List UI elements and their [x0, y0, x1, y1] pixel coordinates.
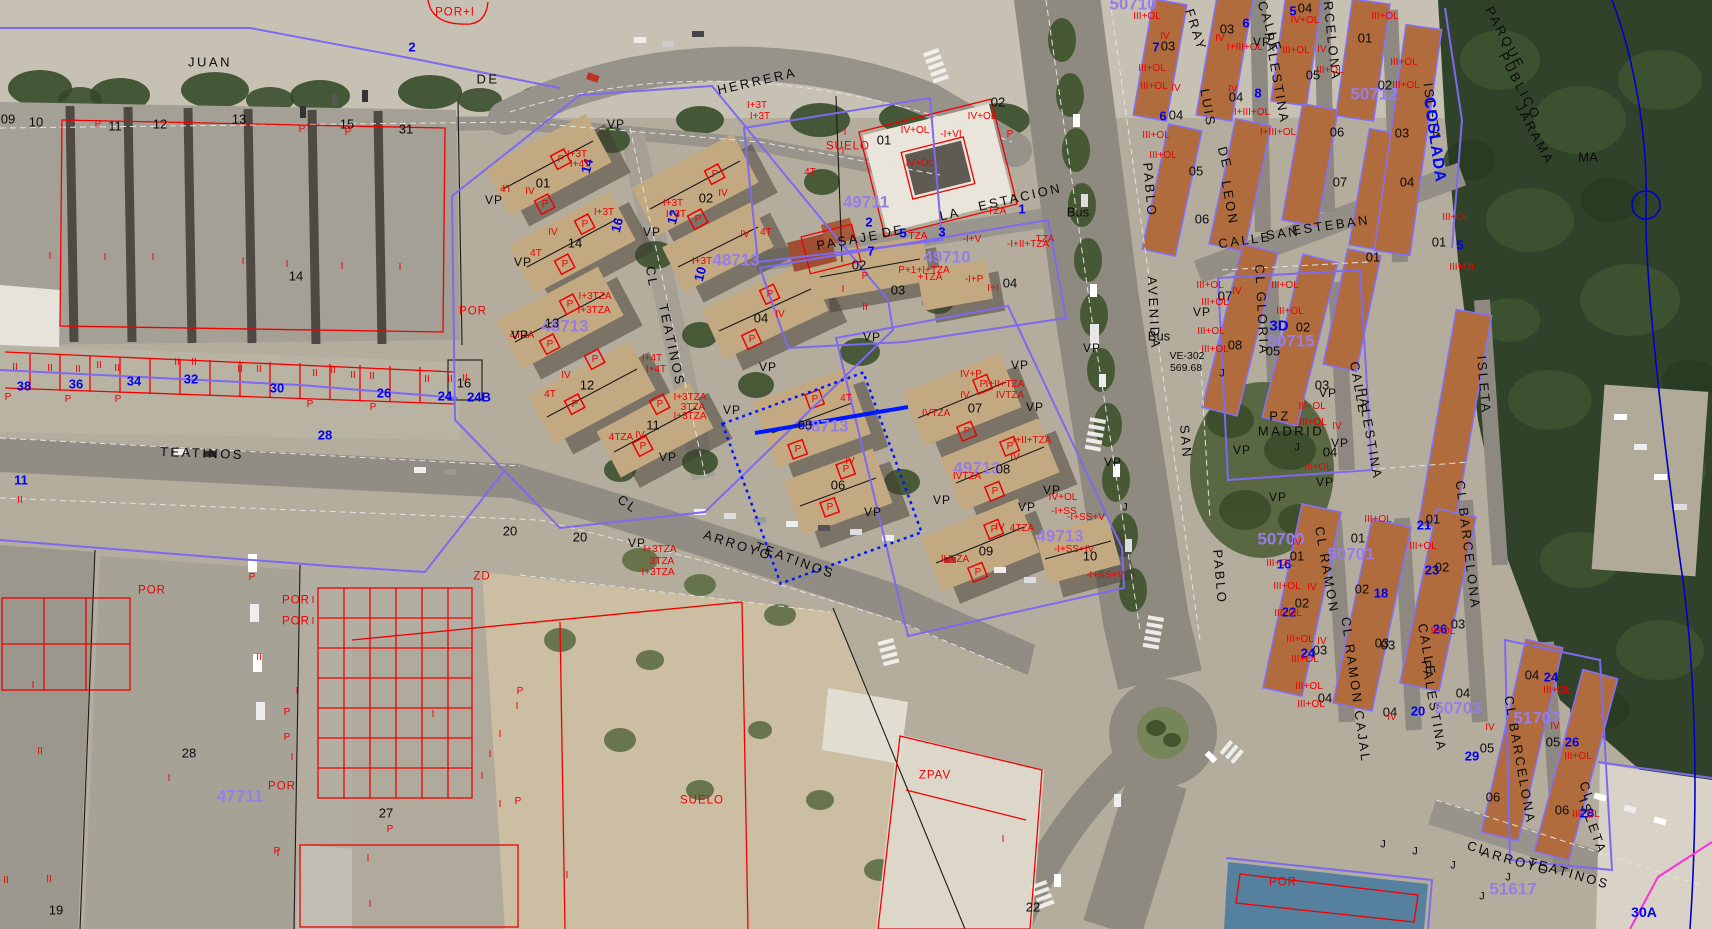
street-label: SAN	[1178, 424, 1194, 459]
map-annotation: J	[1479, 892, 1485, 903]
construction-code: III+OL	[1298, 402, 1326, 412]
portal-number: 11	[14, 474, 28, 487]
construction-code: 4TZA	[1010, 524, 1034, 534]
street-label: JUAN	[188, 56, 232, 69]
construction-code: II	[191, 358, 197, 368]
construction-code: III+OL	[1274, 609, 1302, 619]
zone-label: POR	[268, 781, 296, 793]
building-number: 14	[289, 270, 303, 283]
construction-code: I	[242, 257, 245, 267]
construction-code: IV+OL	[906, 159, 935, 169]
construction-code: II	[350, 371, 356, 381]
zone-label: POR	[282, 616, 310, 628]
portal-number: 2	[408, 41, 415, 54]
street-label: LEON	[1220, 180, 1241, 227]
construction-code: P	[749, 335, 756, 345]
portal-number: 3	[938, 226, 945, 239]
street-label: PABLO	[1211, 549, 1229, 605]
construction-code: IV	[1228, 85, 1237, 95]
construction-code: IV	[1160, 32, 1169, 42]
street-label: DE	[476, 73, 499, 86]
construction-code: II	[37, 747, 43, 757]
construction-code: II	[12, 363, 18, 373]
zone-label: POR	[459, 306, 487, 318]
portal-number: 5	[1456, 239, 1463, 252]
zone-label: POR+I	[435, 7, 475, 19]
building-number: 10	[29, 116, 43, 129]
construction-code: I	[481, 772, 484, 782]
construction-code: IV	[1232, 287, 1241, 297]
building-number: 13	[545, 317, 559, 330]
construction-code: IVTZA	[996, 391, 1024, 401]
construction-code: IV	[1387, 713, 1396, 723]
map-annotation: VP	[864, 506, 882, 518]
building-number: 04	[1003, 277, 1017, 290]
building-number: 27	[379, 807, 393, 820]
construction-code: I	[312, 596, 315, 606]
construction-code: IV	[1485, 723, 1494, 733]
building-number: 02	[991, 96, 1005, 109]
street-label: PZ	[1269, 410, 1291, 423]
construction-code: II	[256, 365, 262, 375]
construction-code: I+3TZA	[641, 568, 674, 578]
building-number: 08	[1228, 339, 1242, 352]
construction-code: P	[5, 393, 12, 403]
construction-code: I	[341, 262, 344, 272]
construction-code: P	[542, 200, 549, 210]
construction-code: IV	[635, 431, 644, 441]
building-number: 14	[568, 237, 582, 250]
construction-code: IV	[775, 310, 784, 320]
building-number: 03	[891, 284, 905, 297]
map-annotation: VP	[1269, 491, 1287, 503]
portal-number: 24	[438, 390, 452, 403]
construction-code: I+3T	[663, 199, 683, 209]
building-number: 09	[979, 545, 993, 558]
construction-code: II	[256, 653, 262, 663]
construction-code: P	[284, 733, 291, 743]
portal-number: 30	[270, 382, 284, 395]
construction-code: IV	[1171, 84, 1180, 94]
building-number: 01	[1426, 513, 1440, 526]
building-number: 28	[182, 747, 196, 760]
construction-code: I	[367, 854, 370, 864]
portal-number: 16	[609, 216, 625, 233]
map-annotation: VP	[485, 194, 503, 206]
construction-code: I	[168, 774, 171, 784]
street-label: PALESTINA	[1356, 387, 1385, 481]
construction-code: II	[462, 374, 468, 384]
portal-number: 24	[1544, 671, 1558, 684]
zone-label: POR	[138, 585, 166, 597]
construction-code: III+OL	[1286, 635, 1314, 645]
map-annotation: VP	[1043, 484, 1061, 496]
building-number: 01	[877, 134, 891, 147]
construction-code: 4TZA	[609, 433, 633, 443]
portal-number: 32	[184, 373, 198, 386]
street-label: TEATINOS	[160, 445, 244, 461]
construction-code: P	[1007, 442, 1014, 452]
building-number: 01	[1351, 532, 1365, 545]
construction-code: I	[296, 687, 299, 697]
construction-code: IV	[1550, 722, 1559, 732]
building-number: 04	[1456, 687, 1470, 700]
construction-code: IVTZA	[953, 472, 981, 482]
construction-code: II	[424, 375, 430, 385]
block-number: 49711	[843, 194, 889, 211]
construction-code: III+OL	[1142, 131, 1170, 141]
construction-code: II	[114, 364, 120, 374]
map-annotation: VP	[1319, 387, 1337, 399]
construction-code: -I+SS+V	[1086, 571, 1124, 581]
building-number: 06	[1486, 791, 1500, 804]
construction-code: I+3TZA	[578, 292, 611, 302]
map-annotation: VP	[1104, 456, 1122, 468]
construction-code: 3TZA	[650, 557, 674, 567]
construction-code: P	[515, 797, 522, 807]
construction-code: II	[75, 365, 81, 375]
construction-code: P	[964, 427, 971, 437]
construction-code: IVTZA	[941, 555, 969, 565]
construction-code: P	[767, 290, 774, 300]
construction-code: P	[274, 847, 281, 857]
block-number: 50701	[1327, 546, 1374, 563]
construction-code: I	[499, 800, 502, 810]
construction-code: I	[49, 252, 52, 262]
construction-code: II	[447, 375, 453, 385]
map-annotation: Bus	[1148, 330, 1170, 343]
building-number: 05	[1189, 165, 1203, 178]
construction-code: P	[1007, 130, 1014, 140]
construction-code: IV	[1215, 34, 1224, 44]
map-annotation: VP	[1253, 36, 1271, 48]
construction-code: P	[572, 400, 579, 410]
building-number: 06	[1555, 804, 1569, 817]
construction-code: I+4T	[646, 365, 666, 375]
map-annotation: VP	[723, 404, 741, 416]
building-number: 03	[1375, 637, 1389, 650]
construction-code: III+OL	[1271, 281, 1299, 291]
construction-code: II	[312, 369, 318, 379]
construction-code: P	[95, 120, 102, 130]
construction-code: P	[862, 272, 869, 282]
building-number: 02	[1435, 561, 1449, 574]
street-label: CL	[615, 492, 640, 515]
portal-number: 20	[1411, 705, 1425, 718]
map-annotation: MA	[1578, 151, 1598, 164]
construction-code: IV	[960, 391, 969, 401]
map-annotation: VP	[1233, 444, 1251, 456]
construction-code: P	[992, 487, 999, 497]
building-number: 31	[399, 123, 413, 136]
portal-number: 1	[1018, 203, 1025, 216]
street-label: PABLO	[1141, 162, 1159, 218]
building-number: 02	[852, 259, 866, 272]
construction-code: I+4T	[570, 160, 590, 170]
construction-code: III+OL	[1133, 12, 1161, 22]
building-number: 12	[153, 118, 167, 131]
construction-code: II+OL	[1431, 627, 1456, 637]
construction-code: IV	[1010, 453, 1019, 463]
portal-number: 8	[1254, 87, 1261, 100]
construction-code: I+II+TZA	[986, 380, 1025, 390]
construction-code: II	[369, 372, 375, 382]
construction-code: I	[516, 702, 519, 712]
zone-label: SUELO	[826, 141, 870, 153]
construction-code: I+3TZA	[643, 545, 676, 555]
construction-code: -I+SS+V	[1067, 513, 1105, 523]
map-annotation: VP	[1331, 437, 1349, 449]
portal-number: 6	[1242, 17, 1249, 30]
construction-code: II	[17, 496, 23, 506]
map-annotation: J	[1505, 873, 1511, 884]
portal-number: 7	[1152, 41, 1159, 54]
block-number: 50703	[1434, 700, 1481, 717]
map-canvas[interactable]: JUANDEHERRERAPASAJEDELAESTACIONTEATINOSC…	[0, 0, 1712, 929]
construction-code: II	[96, 361, 102, 371]
construction-code: -I+SS+IV	[1054, 545, 1095, 555]
map-annotation: VP	[1193, 306, 1211, 318]
map-labels: JUANDEHERRERAPASAJEDELAESTACIONTEATINOSC…	[0, 0, 1712, 929]
construction-code: IV	[1317, 45, 1326, 55]
construction-code: P	[567, 300, 574, 310]
street-label: COSLADA	[1420, 96, 1448, 183]
map-annotation: 569.68	[1170, 363, 1202, 374]
building-number: 04	[1169, 109, 1183, 122]
building-number: 11	[646, 419, 660, 432]
portal-number: 24B	[467, 391, 491, 404]
construction-code: P	[592, 355, 599, 365]
building-number: 04	[1298, 2, 1312, 15]
map-annotation: VP	[1018, 501, 1036, 513]
portal-number: 18	[1374, 587, 1388, 600]
construction-code: III+OL	[1297, 700, 1325, 710]
construction-code: I+II+TZA	[1013, 436, 1052, 446]
construction-code: I	[291, 753, 294, 763]
construction-code: III+OL	[1196, 281, 1224, 291]
construction-code: P	[370, 403, 377, 413]
construction-code: I	[369, 900, 372, 910]
construction-code: III+OL	[1291, 655, 1319, 665]
construction-code: IV	[718, 189, 727, 199]
construction-code: IV	[1332, 422, 1341, 432]
construction-code: P	[345, 128, 352, 138]
construction-code: I	[152, 253, 155, 263]
building-number: 04	[1400, 176, 1414, 189]
building-number: 09	[1, 113, 15, 126]
portal-number: 26	[1565, 736, 1579, 749]
construction-code: I	[844, 128, 847, 138]
construction-code: I	[842, 285, 845, 295]
construction-code: P	[387, 825, 394, 835]
construction-code: I+3TZA	[673, 412, 706, 422]
construction-code: P	[307, 400, 314, 410]
map-annotation: J	[1219, 369, 1225, 380]
construction-code: P	[517, 687, 524, 697]
map-annotation: VP	[643, 226, 661, 238]
construction-code: P	[827, 503, 834, 513]
street-label: CL	[644, 265, 661, 289]
building-number: 05	[798, 419, 812, 432]
building-number: 13	[232, 113, 246, 126]
block-number: 48713	[712, 252, 759, 269]
map-annotation: Bus	[1067, 206, 1089, 219]
construction-code: P	[115, 395, 122, 405]
building-number: 02	[1355, 583, 1369, 596]
construction-code: P	[249, 573, 256, 583]
construction-code: IV+OL	[1291, 16, 1320, 26]
construction-code: I+3T	[594, 208, 614, 218]
building-number: 06	[831, 479, 845, 492]
construction-code: III+OL	[1371, 12, 1399, 22]
construction-code: I	[399, 263, 402, 273]
construction-code: P	[980, 380, 987, 390]
construction-code: III+OL	[1442, 213, 1470, 223]
street-label: HERRERA	[716, 66, 798, 97]
portal-number: 38	[17, 380, 31, 393]
portal-number: 7	[867, 245, 874, 258]
street-label: LA	[938, 205, 961, 222]
construction-code: III+OL	[1149, 151, 1177, 161]
portal-number: 10	[692, 265, 708, 282]
street-label: FRAY	[1183, 7, 1209, 53]
construction-code: 4T	[804, 168, 816, 178]
construction-code: III+OL	[1304, 463, 1332, 473]
building-number: 06	[1195, 213, 1209, 226]
construction-code: IV	[740, 230, 749, 240]
portal-number: 28	[318, 429, 332, 442]
portal-number: 2	[865, 216, 872, 229]
construction-code: P	[547, 340, 554, 350]
construction-code: I	[566, 871, 569, 881]
construction-code: II	[330, 366, 336, 376]
building-number: 11	[108, 120, 122, 133]
zone-label: ZD	[473, 571, 490, 583]
portal-number: 30A	[1631, 905, 1657, 919]
building-number: 05	[1546, 736, 1560, 749]
construction-code: +TZA	[918, 273, 943, 283]
map-annotation: VP	[514, 256, 532, 268]
map-annotation: VP	[659, 451, 677, 463]
zone-label: POR	[282, 595, 310, 607]
construction-code: I	[104, 253, 107, 263]
street-label: CL RAMON	[1313, 525, 1341, 614]
construction-code: P	[299, 125, 306, 135]
construction-code: IV+OL	[901, 126, 930, 136]
construction-code: P	[795, 445, 802, 455]
map-annotation: VP	[607, 118, 625, 130]
block-number: 49713	[1036, 528, 1083, 545]
construction-code: -I+V	[963, 235, 982, 245]
building-number: 05	[1266, 345, 1280, 358]
street-label: LUIS	[1198, 88, 1218, 129]
building-number: 02	[1296, 321, 1310, 334]
construction-code: I	[286, 260, 289, 270]
map-annotation: VE-302	[1169, 351, 1204, 362]
portal-number: 6	[1159, 110, 1166, 123]
construction-code: I+3T	[666, 210, 686, 220]
construction-code: -I+VI	[940, 130, 961, 140]
map-annotation: J	[1294, 443, 1300, 454]
construction-code: P	[640, 442, 647, 452]
construction-code: III+OL	[1564, 752, 1592, 762]
building-number: 02	[699, 192, 713, 205]
construction-code: I+4T	[642, 354, 662, 364]
construction-code: II	[3, 876, 9, 886]
construction-code: I+3T	[750, 112, 770, 122]
construction-code: -I+P	[965, 275, 984, 285]
construction-code: P	[657, 400, 664, 410]
map-annotation: VP	[1026, 401, 1044, 413]
construction-code: III+OL	[1449, 263, 1477, 273]
construction-code: III+OL	[1273, 582, 1301, 592]
map-annotation: VP	[933, 494, 951, 506]
portal-number: 36	[69, 378, 83, 391]
construction-code: II	[46, 875, 52, 885]
construction-code: II	[862, 303, 868, 313]
street-label: ESTEBAN	[1291, 213, 1370, 237]
construction-code: IVTZA	[922, 409, 950, 419]
construction-code: III+OL	[1266, 559, 1294, 569]
construction-code: IV	[1292, 538, 1301, 548]
block-number: 47711	[217, 788, 263, 805]
construction-code: I+III+OL	[1260, 128, 1296, 138]
map-annotation: VP	[511, 329, 529, 341]
building-number: 01	[1366, 251, 1380, 264]
map-annotation: VP	[863, 331, 881, 343]
construction-code: II	[237, 365, 243, 375]
zone-label: ZPAV	[919, 770, 951, 782]
building-number: 01	[1432, 236, 1446, 249]
construction-code: I+III+OL	[1234, 108, 1270, 118]
street-label: CL RAMON CAJAL	[1339, 616, 1372, 764]
building-number: 22	[1026, 901, 1040, 914]
map-annotation: VP	[1083, 342, 1101, 354]
building-number: 19	[49, 904, 63, 917]
construction-code: III+OL	[1409, 542, 1437, 552]
construction-code: I	[432, 710, 435, 720]
construction-code: III+OL	[1295, 682, 1323, 692]
construction-code: TZA	[909, 232, 928, 242]
portal-number: 34	[127, 375, 141, 388]
building-number: 07	[1333, 176, 1347, 189]
building-number: 20	[503, 525, 517, 538]
construction-code: -I+II+TZA	[1007, 240, 1049, 250]
street-label: ISLETA	[1475, 355, 1493, 415]
construction-code: P	[843, 465, 850, 475]
construction-code: III+OL	[1276, 307, 1304, 317]
map-annotation: J	[1380, 840, 1386, 851]
building-number: 20	[573, 531, 587, 544]
construction-code: P	[582, 220, 589, 230]
street-label: CL BARCELONA	[1454, 480, 1483, 611]
building-number: 03	[1395, 127, 1409, 140]
map-annotation: VP	[1316, 476, 1334, 488]
construction-code: III+OL	[1197, 327, 1225, 337]
construction-code: 4T	[544, 390, 556, 400]
construction-code: I	[312, 617, 315, 627]
map-annotation: J	[1122, 503, 1128, 514]
construction-code: III+OL	[1572, 810, 1600, 820]
construction-code: P	[991, 525, 998, 535]
construction-code: P	[284, 708, 291, 718]
construction-code: I	[1002, 835, 1005, 845]
construction-code: III+OL	[1299, 418, 1327, 428]
construction-code: 4T	[760, 228, 772, 238]
construction-code: III+OL	[1364, 515, 1392, 525]
building-number: 04	[1525, 669, 1539, 682]
construction-code: P	[695, 215, 702, 225]
